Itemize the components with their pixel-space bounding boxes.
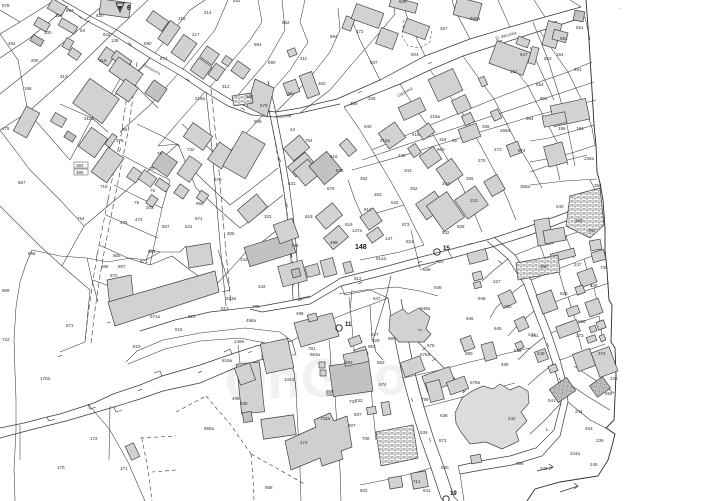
svg-text:475: 475 [120,220,128,225]
svg-text:475: 475 [2,126,10,131]
svg-text:239a: 239a [584,156,595,161]
svg-text:904: 904 [411,52,419,57]
svg-text:894: 894 [330,34,338,39]
svg-text:912: 912 [354,276,362,281]
svg-text:352: 352 [360,176,368,181]
svg-text:291: 291 [574,67,582,72]
svg-text:502: 502 [360,488,368,493]
svg-text:257: 257 [440,26,448,31]
svg-text:26: 26 [452,138,458,143]
svg-text:498: 498 [252,304,260,309]
svg-text:541: 541 [548,398,556,403]
svg-text:613a: 613a [226,296,237,301]
svg-text:890: 890 [388,336,396,341]
svg-text:958a: 958a [204,426,215,431]
svg-text:164: 164 [556,52,564,57]
svg-text:873: 873 [402,222,410,227]
svg-text:268: 268 [482,124,490,129]
svg-text:319: 319 [99,58,107,63]
svg-text:640: 640 [441,465,449,470]
svg-text:248: 248 [590,283,598,288]
svg-text:963: 963 [377,360,385,365]
svg-text:794: 794 [305,138,313,143]
svg-text:635: 635 [336,168,344,173]
svg-text:683: 683 [345,360,353,365]
svg-text:829: 829 [372,338,380,343]
svg-text:746: 746 [291,243,299,248]
svg-text:940: 940 [399,0,407,4]
svg-text:733: 733 [349,399,357,404]
svg-text:908: 908 [254,119,262,124]
svg-text:342: 342 [258,284,266,289]
svg-text:912a: 912a [376,256,387,261]
svg-text:328: 328 [350,101,358,106]
svg-text:203: 203 [146,205,154,210]
svg-text:385: 385 [76,170,84,175]
svg-text:322: 322 [264,214,272,219]
svg-text:73: 73 [157,151,163,156]
svg-text:820: 820 [436,259,444,264]
svg-text:343: 343 [404,168,412,173]
svg-text:474: 474 [135,217,143,222]
svg-text:319a: 319a [195,96,206,101]
svg-text:313: 313 [60,74,68,79]
svg-text:714: 714 [413,479,421,484]
svg-text:871: 871 [140,259,148,264]
svg-text:867: 867 [118,264,126,269]
svg-text:659: 659 [605,391,613,396]
svg-text:6: 6 [127,5,131,12]
svg-text:74: 74 [149,166,155,171]
svg-text:462: 462 [8,41,16,46]
svg-text:214: 214 [204,10,212,15]
svg-text:19: 19 [450,491,457,497]
svg-text:460: 460 [575,218,583,223]
svg-text:498: 498 [296,311,304,316]
svg-text:147a: 147a [352,228,363,233]
svg-text:376: 376 [116,138,124,143]
svg-text:249: 249 [537,351,545,356]
svg-text:498a: 498a [246,318,257,323]
svg-text:216a: 216a [430,114,441,119]
svg-text:960: 960 [437,147,445,152]
svg-text:963a: 963a [310,352,321,357]
svg-text:574: 574 [379,382,387,387]
svg-text:1496: 1496 [234,339,245,344]
svg-text:873: 873 [439,438,447,443]
svg-text:947: 947 [373,296,381,301]
svg-text:671: 671 [195,216,203,221]
svg-text:667: 667 [18,180,26,185]
svg-text:552: 552 [233,0,241,3]
svg-text:623: 623 [188,314,196,319]
svg-text:912: 912 [364,207,372,212]
svg-text:733a: 733a [320,416,331,421]
svg-text:958: 958 [265,485,273,490]
svg-text:816: 816 [345,222,353,227]
svg-text:963: 963 [368,344,376,349]
svg-text:716: 716 [100,184,108,189]
svg-text:652: 652 [560,36,568,41]
svg-text:245: 245 [590,462,598,467]
svg-text:244a: 244a [570,451,581,456]
svg-text:311a: 311a [84,116,94,121]
svg-text:738: 738 [600,265,608,270]
svg-text:15: 15 [443,246,450,252]
svg-text:353: 353 [374,192,382,197]
svg-text:799: 799 [421,397,429,402]
svg-text:11: 11 [345,322,352,328]
svg-text:75: 75 [134,200,140,205]
svg-text:946: 946 [466,316,474,321]
svg-text:154: 154 [439,137,447,142]
svg-text:613: 613 [221,306,229,311]
svg-text:866: 866 [101,264,109,269]
svg-text:217: 217 [192,32,200,37]
svg-text:641: 641 [423,488,431,493]
svg-text:820: 820 [96,13,104,18]
svg-text:821: 821 [406,239,414,244]
svg-text:690: 690 [268,60,276,65]
svg-text:360: 360 [540,264,548,269]
svg-text:247: 247 [574,262,582,267]
svg-text:722: 722 [2,337,10,342]
svg-text:268a: 268a [500,128,511,133]
svg-text:171: 171 [120,466,128,471]
svg-text:273: 273 [494,147,502,152]
svg-text:325: 325 [368,96,376,101]
svg-text:373: 373 [576,333,584,338]
svg-text:980: 980 [465,351,473,356]
svg-text:824: 824 [103,32,111,37]
svg-text:949a: 949a [420,306,431,311]
svg-text:651: 651 [576,25,584,30]
svg-text:152: 152 [510,69,518,74]
svg-text:940: 940 [364,124,372,129]
svg-text:868: 868 [28,251,36,256]
svg-text:819: 819 [133,344,141,349]
svg-text:816: 816 [330,154,338,159]
svg-text:312: 312 [222,84,230,89]
svg-text:539: 539 [420,430,428,435]
svg-text:816a: 816a [222,358,233,363]
svg-text:1024: 1024 [284,377,295,382]
svg-text:215: 215 [412,132,420,137]
svg-text:266: 266 [466,176,474,181]
svg-text:472: 472 [356,29,364,34]
svg-text:678a: 678a [420,352,431,357]
svg-text:948: 948 [478,296,486,301]
svg-text:638: 638 [440,413,448,418]
svg-text:781: 781 [308,346,316,351]
svg-text:870: 870 [110,273,118,278]
svg-text:196: 196 [24,86,32,91]
svg-text:582: 582 [246,94,254,99]
svg-text:398: 398 [516,461,524,466]
svg-text:894: 894 [540,96,548,101]
svg-text:252: 252 [410,186,418,191]
svg-text:139: 139 [111,38,119,43]
svg-text:38: 38 [287,91,293,96]
svg-text:44: 44 [290,127,296,132]
svg-text:381: 381 [588,228,596,233]
svg-text:480: 480 [240,401,248,406]
svg-text:170: 170 [57,465,65,470]
svg-text:358a: 358a [520,184,531,189]
svg-text:678: 678 [427,343,435,348]
svg-text:184: 184 [576,126,584,131]
svg-text:242: 242 [508,416,516,421]
svg-text:239: 239 [596,438,604,443]
svg-text:244: 244 [575,409,583,414]
svg-text:200: 200 [31,58,39,63]
svg-text:240: 240 [556,204,564,209]
svg-text:172: 172 [90,436,98,441]
svg-text:170a: 170a [40,376,51,381]
svg-text:607: 607 [162,224,170,229]
svg-text:869: 869 [2,288,10,293]
svg-text:945: 945 [494,326,502,331]
svg-text:246: 246 [610,376,618,381]
svg-text:816: 816 [175,327,183,332]
svg-text:215a: 215a [380,138,391,143]
svg-text:495: 495 [232,396,240,401]
svg-text:341: 341 [240,257,248,262]
svg-text:968: 968 [196,201,204,206]
svg-text:546: 546 [423,267,431,272]
svg-text:632: 632 [391,200,399,205]
svg-text:302: 302 [318,81,326,86]
svg-text:862: 862 [282,20,290,25]
svg-text:100: 100 [44,30,52,35]
svg-text:68: 68 [122,127,128,132]
svg-text:631: 631 [288,181,296,186]
svg-text:732: 732 [187,147,195,152]
svg-text:243: 243 [540,466,548,471]
svg-text:964: 964 [526,116,534,121]
svg-text:Szkolna: Szkolna [277,113,292,119]
svg-text:210: 210 [470,198,478,203]
svg-text:654: 654 [536,82,544,87]
svg-text:571: 571 [66,323,74,328]
svg-text:186: 186 [558,126,566,131]
svg-text:148: 148 [355,244,367,251]
svg-text:679: 679 [214,177,222,182]
svg-text:264: 264 [442,181,450,186]
svg-text:571a: 571a [150,314,161,319]
svg-text:147: 147 [385,236,393,241]
svg-text:542: 542 [514,348,522,353]
svg-text:974: 974 [518,148,526,153]
svg-text:93: 93 [80,28,86,33]
svg-text:828: 828 [457,224,465,229]
svg-text:358: 358 [594,183,602,188]
svg-text:241: 241 [528,332,536,337]
svg-text:607: 607 [354,412,362,417]
svg-text:374: 374 [598,351,606,356]
svg-text:174: 174 [300,440,308,445]
svg-text:216: 216 [178,16,186,21]
svg-text:498: 498 [330,240,338,245]
svg-text:940a: 940a [470,16,481,21]
svg-text:847: 847 [520,52,528,57]
svg-text:509: 509 [326,389,334,394]
svg-text:832: 832 [442,230,450,235]
svg-text:239: 239 [504,304,512,309]
svg-text:653: 653 [544,56,552,61]
svg-text:678: 678 [327,186,335,191]
svg-text:619: 619 [305,214,313,219]
svg-text:694: 694 [66,8,74,13]
svg-text:527: 527 [371,332,379,337]
svg-text:348: 348 [398,153,406,158]
svg-text:275: 275 [478,158,486,163]
svg-text:579: 579 [260,103,268,108]
svg-text:964: 964 [254,42,262,47]
svg-text:674: 674 [160,56,168,61]
svg-text:641: 641 [185,224,193,229]
svg-text:686: 686 [578,319,586,324]
svg-text:865: 865 [113,253,121,258]
svg-text:754: 754 [77,216,85,221]
svg-text:678: 678 [2,3,10,8]
svg-text:324: 324 [55,13,63,18]
svg-text:864: 864 [148,249,156,254]
svg-text:807: 807 [348,423,356,428]
svg-text:463: 463 [585,426,593,431]
svg-text:227: 227 [493,279,501,284]
svg-text:949: 949 [434,285,442,290]
svg-text:305: 305 [227,231,235,236]
svg-text:690: 690 [144,41,152,46]
svg-text:382: 382 [76,163,84,168]
svg-text:937: 937 [370,60,378,65]
svg-text:76: 76 [150,188,156,193]
svg-text:311: 311 [300,56,308,61]
svg-text:828: 828 [560,291,568,296]
svg-text:708: 708 [362,436,370,441]
svg-text:489: 489 [501,362,509,367]
svg-text:679a: 679a [470,380,481,385]
